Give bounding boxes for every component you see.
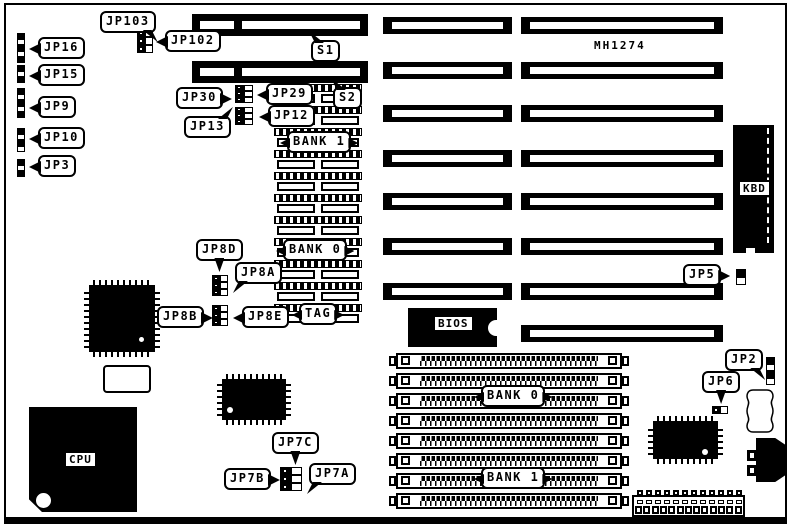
slot-stripe — [530, 198, 714, 205]
expansion-slot-bar — [521, 105, 723, 122]
simm-socket — [396, 433, 622, 449]
expansion-slot-bar — [383, 150, 512, 167]
callout-jp3: JP3 — [38, 155, 76, 177]
cache-chip-outline — [277, 160, 315, 169]
chip-pins — [657, 459, 714, 464]
cache-pin-row — [274, 282, 362, 290]
simm-clip — [401, 456, 410, 465]
callout-jp7b-text: JP7B — [230, 471, 265, 485]
expansion-slot-bar — [521, 325, 723, 342]
slot-s2-segment-short — [200, 68, 234, 76]
header-pin-dash — [682, 500, 688, 504]
simm-clip — [608, 396, 617, 405]
callout-jp6-text: JP6 — [708, 374, 734, 388]
header-pin-open — [652, 506, 659, 514]
simm-pin-row — [420, 461, 598, 466]
chip-pins — [93, 352, 151, 357]
callout-jp10-text: JP10 — [44, 130, 79, 144]
callout-jp29-text: JP29 — [272, 86, 307, 100]
cache-chip-outline — [321, 182, 359, 191]
jumper-pin — [212, 312, 220, 319]
callout-jp6: JP6 — [702, 371, 740, 393]
jumper-pin — [220, 289, 228, 296]
jumper-pin — [766, 378, 775, 385]
callout-jp103: JP103 — [100, 11, 156, 33]
cache-chip-outline — [277, 292, 315, 301]
jumper-jp6 — [712, 406, 728, 414]
power-connector — [756, 438, 787, 482]
cache-pin-row — [274, 260, 362, 268]
jumper-pin — [280, 483, 291, 491]
simm-end-tab — [389, 496, 396, 506]
power-connector-tab — [747, 450, 757, 461]
callout-jp16: JP16 — [38, 37, 85, 59]
cache-chip-outline — [321, 270, 359, 279]
simm-clip — [608, 436, 617, 445]
cache-chip-outline — [321, 226, 359, 235]
simm-pin-row — [420, 441, 598, 446]
callout-tag: TAG — [299, 303, 337, 325]
jumper-pin — [137, 45, 145, 53]
simm-end-tab — [622, 496, 629, 506]
simm-clip — [608, 416, 617, 425]
callout-jp103-text: JP103 — [106, 14, 150, 28]
callout-bank0-cache-text: BANK 0 — [289, 242, 341, 256]
simm-end-tab — [389, 356, 396, 366]
jumper-jp5 — [736, 269, 746, 285]
slot-stripe — [530, 330, 714, 337]
cache-chip-outline — [277, 182, 315, 191]
jumper-block-jp13-jp12 — [235, 107, 253, 125]
callout-jp29: JP29 — [266, 83, 313, 105]
header-pin-open — [710, 506, 717, 514]
simm-clip — [608, 456, 617, 465]
header-pin-dash — [727, 500, 733, 504]
header-pin-dash — [646, 500, 652, 504]
chip-body — [89, 285, 155, 352]
cache-chip-outline — [321, 160, 359, 169]
jumper-pin-center — [238, 99, 240, 100]
plcc-chip-bottom-right — [648, 416, 723, 464]
callout-jp16-text: JP16 — [44, 40, 79, 54]
callout-jp7b: JP7B — [224, 468, 271, 490]
callout-bank1-simm-text: BANK 1 — [487, 470, 539, 484]
jumper-pin — [712, 406, 720, 414]
header-pin-filled — [637, 490, 643, 497]
simm-pin-row — [420, 361, 598, 366]
slot-stripe — [392, 288, 503, 295]
cache-pin-row — [274, 172, 362, 180]
callout-s2-text: S2 — [339, 90, 356, 104]
jumper-block-jp7 — [280, 467, 302, 491]
header-pin-open — [685, 506, 692, 514]
simm-clip — [401, 376, 410, 385]
callout-jp15: JP15 — [38, 64, 85, 86]
header-pin-dash — [691, 500, 697, 504]
jumper-pin — [212, 319, 220, 326]
cache-chip-outline — [277, 204, 315, 213]
jumper-pin — [280, 467, 291, 475]
jumper-pin — [137, 37, 145, 45]
jumper-pin-center — [238, 87, 240, 88]
battery-outline — [743, 388, 777, 434]
expansion-slot-bar — [521, 193, 723, 210]
jumper-pin — [17, 57, 25, 63]
slot-stripe — [392, 155, 503, 162]
expansion-slot-bar — [521, 62, 723, 79]
cache-pin-row — [274, 194, 362, 202]
expansion-slot-bar — [521, 17, 723, 34]
slot-stripe — [530, 110, 714, 117]
chip-pins — [718, 425, 723, 455]
jumper-pin-center — [215, 308, 217, 310]
header-pin-dash — [664, 500, 670, 504]
jumper-strip-jp10 — [17, 128, 25, 152]
simm-end-tab — [389, 456, 396, 466]
header-pin-filled — [655, 490, 661, 497]
callout-s2: S2 — [333, 87, 362, 109]
header-pin-open — [701, 506, 708, 514]
slot-stripe — [530, 22, 714, 29]
simm-socket — [396, 413, 622, 429]
simm-clip — [608, 476, 617, 485]
jumper-pin-center — [215, 322, 217, 324]
header-pin-open — [693, 506, 700, 514]
simm-end-tab — [622, 476, 629, 486]
bios-label: BIOS — [433, 315, 474, 332]
slot-s2-bar — [192, 61, 368, 83]
callout-s1-text: S1 — [317, 43, 334, 57]
jumper-pin-center — [284, 486, 287, 488]
oscillator-socket — [103, 365, 151, 393]
simm-clip — [401, 496, 410, 505]
simm-end-tab — [389, 396, 396, 406]
jumper-pin — [291, 467, 302, 475]
expansion-slot-bar — [383, 238, 512, 255]
header-pin-dash — [709, 500, 715, 504]
callout-jp8e-text: JP8E — [248, 309, 283, 323]
jumper-strip-jp2 — [766, 357, 775, 385]
simm-end-tab — [622, 376, 629, 386]
jumper-pin-center — [238, 109, 240, 110]
callout-bank0-cache: BANK 0 — [283, 239, 347, 261]
chip-body — [222, 379, 286, 420]
slot-stripe — [392, 110, 503, 117]
simm-end-tab — [389, 476, 396, 486]
callout-jp7a: JP7A — [309, 463, 356, 485]
callout-jp12-text: JP12 — [274, 108, 309, 122]
jumper-pin — [17, 112, 25, 118]
slot-stripe — [392, 22, 503, 29]
simm-socket — [396, 493, 622, 509]
power-connector-tab — [747, 465, 757, 476]
callout-jp12: JP12 — [268, 105, 315, 127]
jumper-pin — [212, 305, 220, 312]
jumper-pin — [291, 483, 302, 491]
jumper-pin — [220, 312, 228, 319]
callout-jp10: JP10 — [38, 127, 85, 149]
jumper-pin-center — [238, 93, 240, 94]
jumper-strip-jp15 — [17, 65, 25, 83]
kbd-label: KBD — [738, 180, 771, 197]
cache-chip-outline — [277, 270, 315, 279]
callout-bank0-simm-text: BANK 0 — [487, 388, 539, 402]
simm-end-tab — [622, 436, 629, 446]
cache-chip-outline — [321, 292, 359, 301]
header-pin-dash — [673, 500, 679, 504]
pin1-dot-plcc-center — [227, 407, 233, 413]
jumper-pin — [212, 282, 220, 289]
jumper-pin — [235, 119, 244, 125]
jumper-pin — [220, 282, 228, 289]
jumper-pin — [736, 277, 746, 285]
header-pin-filled — [691, 490, 697, 497]
jumper-pin-center — [215, 285, 217, 287]
simm-clip — [401, 396, 410, 405]
cache-chip-outline — [321, 116, 359, 125]
callout-jp8d-text: JP8D — [202, 242, 237, 256]
callout-jp7c-text: JP7C — [278, 435, 313, 449]
jumper-strip-jp9 — [17, 88, 25, 118]
jumper-strip-jp16 — [17, 33, 25, 63]
expansion-slot-bar — [383, 105, 512, 122]
jumper-pin — [145, 45, 153, 53]
slot-stripe — [392, 198, 503, 205]
header-pin-open — [668, 506, 675, 514]
simm-pin-row — [420, 501, 598, 506]
simm-clip — [608, 356, 617, 365]
jumper-pin — [212, 289, 220, 296]
header-pin-open — [635, 506, 642, 514]
callout-jp2: JP2 — [725, 349, 763, 371]
callout-jp30: JP30 — [176, 87, 223, 109]
expansion-slot-bar — [383, 17, 512, 34]
jumper-pin — [766, 357, 775, 364]
cpu-label: CPU — [64, 451, 97, 468]
slot-stripe — [530, 67, 714, 74]
header-pin-dash — [718, 500, 724, 504]
jumper-pin — [220, 319, 228, 326]
expansion-slot-bar — [521, 150, 723, 167]
board-model-label: MH1274 — [594, 39, 646, 52]
expansion-slot-bar — [383, 193, 512, 210]
simm-clip — [401, 356, 410, 365]
header-pin-filled — [727, 490, 733, 497]
callout-jp7a-text: JP7A — [315, 466, 350, 480]
callout-tag-text: TAG — [305, 306, 331, 320]
simm-clip — [608, 496, 617, 505]
header-pin-open — [677, 506, 684, 514]
header-pin-filled — [709, 490, 715, 497]
callout-bank1-simm: BANK 1 — [481, 467, 545, 489]
callout-jp8d: JP8D — [196, 239, 243, 261]
callout-jp8a: JP8A — [235, 262, 282, 284]
callout-bank0-simm: BANK 0 — [481, 385, 545, 407]
expansion-slot-bar — [383, 283, 512, 300]
slot-s2-segment-long — [242, 68, 360, 76]
jumper-pin-center — [238, 121, 240, 122]
header-pin-open — [718, 506, 725, 514]
jumper-block-jp30-jp29 — [235, 85, 253, 103]
jumper-pin — [17, 171, 25, 177]
simm-end-tab — [389, 376, 396, 386]
header-pin-dash — [655, 500, 661, 504]
qfp-chipset-chip — [84, 280, 160, 357]
slot-stripe — [530, 243, 714, 250]
expansion-slot-bar — [521, 238, 723, 255]
jumper-pin — [17, 77, 25, 83]
callout-jp9: JP9 — [38, 96, 76, 118]
slot-stripe — [392, 243, 503, 250]
callout-bank1-cache-text: BANK 1 — [293, 134, 345, 148]
header-pin-dash — [637, 500, 643, 504]
pin1-dot-plcc-bottom-right — [702, 449, 708, 455]
callout-jp8b: JP8B — [157, 306, 204, 328]
callout-jp8a-text: JP8A — [241, 265, 276, 279]
jumper-pin — [17, 146, 25, 152]
jumper-pin — [280, 475, 291, 483]
jumper-pin-center — [715, 409, 717, 411]
jumper-pin — [220, 305, 228, 312]
kbd-chip-notch — [746, 248, 755, 253]
simm-socket — [396, 353, 622, 369]
cache-chip-outline — [277, 226, 315, 235]
simm-clip — [401, 476, 410, 485]
callout-jp7c: JP7C — [272, 432, 319, 454]
jumper-pin — [212, 275, 220, 282]
callout-jp102: JP102 — [165, 30, 221, 52]
header-pin-filled — [673, 490, 679, 497]
jumper-pin-center — [215, 292, 217, 294]
callout-jp2-text: JP2 — [731, 352, 757, 366]
slot-stripe — [530, 155, 714, 162]
cache-pin-row — [274, 216, 362, 224]
header-pin-dash — [700, 500, 706, 504]
callout-jp8e: JP8E — [242, 306, 289, 328]
jumper-block-jp8d-jp8a — [212, 275, 228, 296]
simm-end-tab — [389, 416, 396, 426]
jumper-pin-center — [284, 470, 287, 472]
header-pin-filled — [682, 490, 688, 497]
header-pin-open — [660, 506, 667, 514]
plcc-chip-center — [217, 374, 291, 425]
header-pin-filled — [646, 490, 652, 497]
callout-jp3-text: JP3 — [44, 158, 70, 172]
slot-stripe — [530, 288, 714, 295]
callout-bank1-cache: BANK 1 — [287, 131, 351, 153]
chip-pins — [286, 383, 291, 416]
header-pin-filled — [700, 490, 706, 497]
header-pin-filled — [736, 490, 742, 497]
header-pin-open — [643, 506, 650, 514]
callout-jp13: JP13 — [184, 116, 231, 138]
jumper-pin — [736, 269, 746, 277]
jumper-pin — [720, 406, 728, 414]
jumper-pin-center — [140, 48, 142, 50]
slot-s1-segment-long — [242, 21, 360, 29]
header-pin-dash — [736, 500, 742, 504]
chip-body — [653, 421, 718, 459]
jumper-pin — [244, 119, 253, 125]
jumper-block-jp8b-jp8e — [212, 305, 228, 326]
simm-end-tab — [389, 436, 396, 446]
header-pin-filled — [664, 490, 670, 497]
jumper-pin-center — [238, 115, 240, 116]
simm-pin-row — [420, 421, 598, 426]
pin1-dot-cpu — [36, 493, 51, 508]
bios-chip-notch — [488, 320, 497, 336]
simm-end-tab — [622, 356, 629, 366]
simm-clip — [608, 376, 617, 385]
expansion-slot-bar — [383, 62, 512, 79]
simm-end-tab — [622, 396, 629, 406]
callout-jp102-text: JP102 — [171, 33, 215, 47]
callout-jp13-text: JP13 — [190, 119, 225, 133]
callout-jp30-text: JP30 — [182, 90, 217, 104]
jumper-pin-center — [284, 478, 287, 480]
bottom-header-connector — [632, 490, 745, 517]
header-pin-filled — [718, 490, 724, 497]
header-pin-open — [735, 506, 742, 514]
motherboard-diagram: MH1274 CPU BIOS KBD JP1 — [0, 0, 791, 527]
jumper-pin — [766, 364, 775, 371]
jumper-pin-center — [215, 278, 217, 280]
simm-end-tab — [622, 456, 629, 466]
jumper-pin — [220, 275, 228, 282]
jumper-pin-center — [215, 315, 217, 317]
callout-jp5-text: JP5 — [689, 267, 715, 281]
slot-s1-segment-short — [200, 21, 234, 29]
callout-jp5: JP5 — [683, 264, 721, 286]
jumper-pin — [235, 97, 244, 103]
slot-stripe — [392, 67, 503, 74]
header-pin-open — [726, 506, 733, 514]
jumper-pin — [766, 371, 775, 378]
cache-chip-outline — [321, 204, 359, 213]
simm-end-tab — [622, 416, 629, 426]
callout-jp15-text: JP15 — [44, 67, 79, 81]
jumper-pin-center — [140, 40, 142, 42]
jumper-strip-jp3 — [17, 159, 25, 177]
jumper-pin — [145, 37, 153, 45]
pin1-dot-qfp — [139, 337, 144, 342]
callout-s1: S1 — [311, 40, 340, 62]
simm-clip — [401, 436, 410, 445]
chip-pins — [226, 420, 282, 425]
jumper-pin — [244, 97, 253, 103]
callout-jp8b-text: JP8B — [163, 309, 198, 323]
jumper-pin — [291, 475, 302, 483]
simm-clip — [401, 416, 410, 425]
callout-jp9-text: JP9 — [44, 99, 70, 113]
